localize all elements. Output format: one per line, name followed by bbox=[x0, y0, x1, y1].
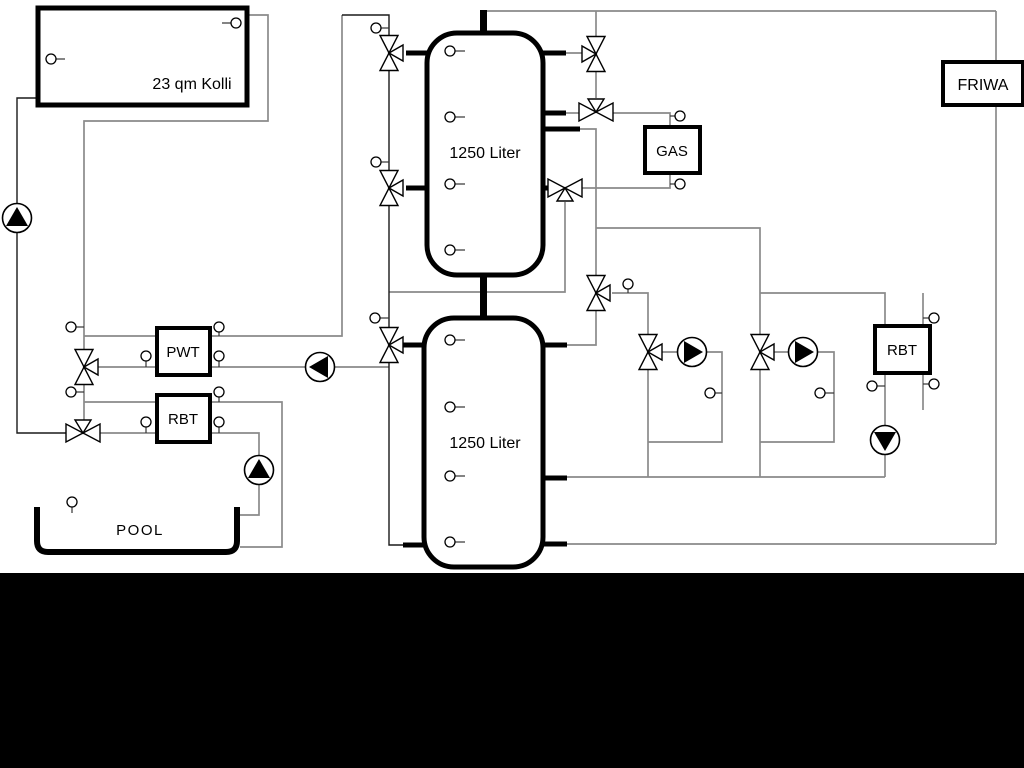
friwa-label: FRIWA bbox=[958, 77, 1009, 94]
sensor-tank1-2 bbox=[445, 112, 455, 122]
sensor-pwt-right-top bbox=[214, 322, 224, 332]
sensor-rbt-right-bottom bbox=[214, 417, 224, 427]
rbt-dhw-label: RBT bbox=[887, 342, 917, 359]
sensor-rbt-in bbox=[66, 387, 76, 397]
sensor-pool bbox=[67, 497, 77, 507]
footer-black-bar bbox=[0, 573, 1024, 768]
sensor-pwt-right-bottom bbox=[214, 351, 224, 361]
buffer-tank-top-label: 1250 Liter bbox=[449, 145, 521, 162]
gas-boiler-label: GAS bbox=[656, 143, 688, 160]
sensor-gas-supply bbox=[675, 111, 685, 121]
pump-heating-circuit1 bbox=[678, 338, 707, 367]
hydraulic-schematic: 23 qm Kolli 1250 Liter 1250 Liter GAS FR… bbox=[0, 0, 1024, 768]
sensor-tank1-1 bbox=[445, 46, 455, 56]
pump-rbt-dhw bbox=[871, 426, 900, 455]
sensor-rbt-dhw-out bbox=[867, 381, 877, 391]
rbt-pool-label: RBT bbox=[168, 411, 198, 428]
buffer-tank-bottom-label: 1250 Liter bbox=[449, 435, 521, 452]
schematic-page: 23 qm Kolli 1250 Liter 1250 Liter GAS FR… bbox=[0, 0, 1024, 768]
sensor-rbt-left bbox=[141, 417, 151, 427]
sensor-rbt-dhw-bottom bbox=[929, 379, 939, 389]
pump-pool bbox=[245, 456, 274, 485]
pump-pwt bbox=[306, 353, 335, 382]
sensor-tank1-3 bbox=[445, 179, 455, 189]
pool-label: POOL bbox=[116, 522, 164, 539]
sensor-collector-return bbox=[46, 54, 56, 64]
pwt-label: PWT bbox=[166, 344, 199, 361]
sensor-tank2-1 bbox=[445, 335, 455, 345]
pump-solar bbox=[3, 204, 32, 233]
sensor-column-1 bbox=[371, 23, 381, 33]
sensor-tank2-2 bbox=[445, 402, 455, 412]
pump-heating-circuit2 bbox=[789, 338, 818, 367]
sensor-heating-feed bbox=[623, 279, 633, 289]
sensor-tank2-4 bbox=[445, 537, 455, 547]
collector-label: 23 qm Kolli bbox=[152, 76, 231, 93]
sensor-pwt-left bbox=[141, 351, 151, 361]
sensor-tank1-4 bbox=[445, 245, 455, 255]
sensor-circuit2 bbox=[815, 388, 825, 398]
sensor-pwt-in bbox=[66, 322, 76, 332]
sensor-rbt-right-top bbox=[214, 387, 224, 397]
sensor-rbt-dhw-top bbox=[929, 313, 939, 323]
sensor-column-2 bbox=[371, 157, 381, 167]
sensor-tank2-3 bbox=[445, 471, 455, 481]
sensor-circuit1 bbox=[705, 388, 715, 398]
sensor-column-3 bbox=[370, 313, 380, 323]
sensor-collector-flow bbox=[231, 18, 241, 28]
sensor-gas-return bbox=[675, 179, 685, 189]
